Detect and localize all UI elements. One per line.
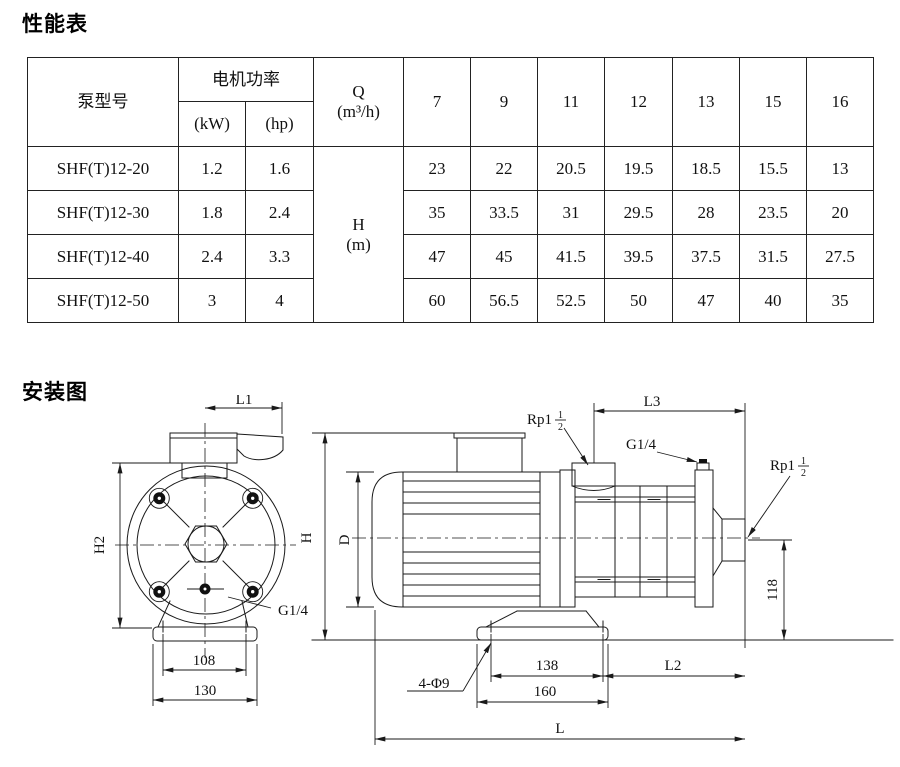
flow-unit: (m³/h) [314, 102, 403, 122]
rp-fraction-den: 2 [801, 468, 806, 479]
dim-label-l1: L1 [236, 395, 253, 408]
side-motor [372, 433, 540, 607]
head-cell: 23.5 [740, 191, 807, 235]
discharge-port-label: Rp1 1 2 [527, 410, 588, 465]
dim-label-l3: L3 [644, 395, 661, 410]
motor-adapter [540, 472, 560, 607]
hp-cell: 4 [246, 279, 314, 323]
performance-table-title: 性能表 [22, 8, 88, 38]
head-cell: 33.5 [471, 191, 538, 235]
head-cell: 15.5 [740, 147, 807, 191]
header-kw: (kW) [179, 102, 246, 147]
head-cell: 28 [673, 191, 740, 235]
side-pump [540, 459, 745, 607]
head-unit: (m) [314, 235, 403, 255]
hp-cell: 3.3 [246, 235, 314, 279]
performance-table: 泵型号 电机功率 Q (m³/h) 7 9 11 12 13 15 16 (kW… [27, 57, 874, 323]
model-cell: SHF(T)12-50 [28, 279, 179, 323]
hp-cell: 2.4 [246, 191, 314, 235]
dim-label-d: D [337, 534, 353, 545]
dim-l1: L1 [205, 395, 282, 434]
suction-port [713, 508, 745, 576]
header-hp: (hp) [246, 102, 314, 147]
model-cell: SHF(T)12-40 [28, 235, 179, 279]
head-unit-cell: H (m) [314, 147, 404, 323]
flow-value: 13 [673, 58, 740, 147]
rp-fraction-num: 1 [801, 456, 806, 467]
terminal-box-cap [454, 433, 525, 438]
dim-label-160: 160 [534, 684, 557, 700]
head-cell: 23 [404, 147, 471, 191]
kw-cell: 1.2 [179, 147, 246, 191]
front-terminal-box [170, 433, 283, 478]
installation-drawing: L1 H2 G1/4 108 130 [0, 395, 900, 767]
vent-plug-label: G1/4 [626, 437, 697, 462]
dim-108: 108 [163, 634, 246, 676]
flow-value: 9 [471, 58, 538, 147]
motor-ribs [403, 481, 540, 596]
head-cell: 37.5 [673, 235, 740, 279]
pump-flange-right [695, 470, 713, 607]
rp-fraction-den: 2 [558, 422, 563, 433]
head-cell: 20 [807, 191, 874, 235]
head-cell: 35 [807, 279, 874, 323]
dim-label-118: 118 [765, 579, 781, 601]
header-motor-power: 电机功率 [179, 58, 314, 102]
datasheet-page: 性能表 泵型号 电机功率 Q (m³/h) 7 9 11 12 13 15 16 [0, 0, 900, 767]
flow-value: 7 [404, 58, 471, 147]
model-cell: SHF(T)12-30 [28, 191, 179, 235]
head-cell: 27.5 [807, 235, 874, 279]
model-cell: SHF(T)12-20 [28, 147, 179, 191]
head-cell: 20.5 [538, 147, 605, 191]
header-flow: Q (m³/h) [314, 58, 404, 147]
dim-d: D [337, 472, 374, 607]
kw-cell: 1.8 [179, 191, 246, 235]
discharge-port [572, 463, 615, 491]
dim-label-h2: H2 [92, 536, 108, 554]
head-cell: 35 [404, 191, 471, 235]
stage-casing [575, 486, 695, 597]
hex-plug [185, 526, 227, 562]
head-cell: 31 [538, 191, 605, 235]
suction-port-label: Rp1 1 2 [748, 456, 809, 537]
head-cell: 39.5 [605, 235, 673, 279]
head-cell: 50 [605, 279, 673, 323]
head-cell: 31.5 [740, 235, 807, 279]
dim-label-h: H [299, 532, 315, 543]
head-cell: 29.5 [605, 191, 673, 235]
vent-plug [697, 459, 709, 470]
dim-label-138: 138 [536, 658, 559, 674]
side-base [312, 611, 893, 640]
head-cell: 52.5 [538, 279, 605, 323]
port-label-g14-front: G1/4 [278, 603, 309, 619]
flow-symbol: Q [314, 82, 403, 102]
mounting-foot [477, 627, 608, 640]
flow-value: 11 [538, 58, 605, 147]
head-cell: 40 [740, 279, 807, 323]
kw-cell: 3 [179, 279, 246, 323]
port-label-rp-discharge: Rp1 [527, 412, 552, 428]
head-cell: 41.5 [538, 235, 605, 279]
dim-label-l2: L2 [665, 658, 682, 674]
dim-h: H [299, 433, 454, 640]
head-cell: 13 [807, 147, 874, 191]
hp-cell: 1.6 [246, 147, 314, 191]
dim-118: 118 [748, 540, 792, 640]
head-cell: 19.5 [605, 147, 673, 191]
header-pump-model: 泵型号 [28, 58, 179, 147]
head-cell: 18.5 [673, 147, 740, 191]
drain-plug [187, 584, 224, 595]
handle-spout [237, 434, 283, 460]
head-cell: 47 [673, 279, 740, 323]
dim-138: 138 [491, 634, 603, 682]
label-4-phi9: 4-Φ9 [419, 676, 450, 692]
kw-cell: 2.4 [179, 235, 246, 279]
head-cell: 22 [471, 147, 538, 191]
flow-value: 15 [740, 58, 807, 147]
dim-label-108: 108 [193, 653, 216, 669]
flow-value: 12 [605, 58, 673, 147]
rp-fraction-num: 1 [558, 410, 563, 421]
dim-label-l: L [555, 721, 564, 737]
port-label-rp-suction: Rp1 [770, 458, 795, 474]
head-symbol: H [314, 215, 403, 235]
front-drain-label: G1/4 [228, 597, 309, 619]
head-cell: 47 [404, 235, 471, 279]
tie-rod-bands [575, 497, 695, 582]
head-cell: 56.5 [471, 279, 538, 323]
head-cell: 45 [471, 235, 538, 279]
port-label-g14-side: G1/4 [626, 437, 657, 453]
head-cell: 60 [404, 279, 471, 323]
bolt-holes-label: 4-Φ9 [407, 643, 491, 692]
pump-side-view: H D L3 Rp1 1 2 [299, 395, 893, 745]
pump-flange-left [560, 470, 575, 607]
dim-l2: L2 [603, 658, 745, 676]
terminal-box [457, 438, 522, 472]
pump-front-view: L1 H2 G1/4 108 130 [92, 395, 309, 706]
dim-label-130: 130 [194, 683, 217, 699]
flow-value: 16 [807, 58, 874, 147]
